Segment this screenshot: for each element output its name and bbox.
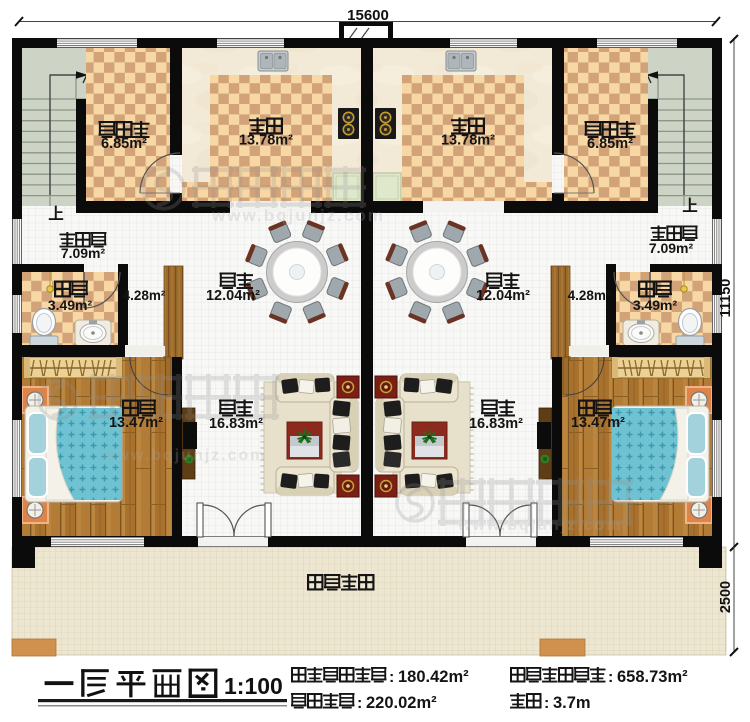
svg-text:13.47m²: 13.47m² [109, 415, 163, 431]
svg-text:658.73m²: 658.73m² [617, 668, 688, 686]
svg-text:7.09m²: 7.09m² [649, 240, 694, 256]
svg-text:13.78m²: 13.78m² [239, 133, 293, 149]
svg-text:13.47m²: 13.47m² [571, 415, 625, 431]
svg-text:1:100: 1:100 [224, 673, 283, 699]
svg-text:3.49m²: 3.49m² [48, 297, 93, 313]
svg-text:4.28m²: 4.28m² [123, 288, 166, 303]
svg-text:16.83m²: 16.83m² [209, 416, 263, 432]
svg-text:16.83m²: 16.83m² [469, 416, 523, 432]
svg-text:6.85m²: 6.85m² [587, 136, 633, 152]
svg-text:3.7m: 3.7m [553, 694, 591, 712]
svg-text:2500: 2500 [718, 581, 734, 613]
svg-text:11150: 11150 [718, 279, 734, 318]
svg-text::: : [544, 695, 549, 712]
svg-text:www.bqjunjz.com: www.bqjunjz.com [211, 206, 385, 225]
svg-text:7.09m²: 7.09m² [61, 245, 106, 261]
svg-text:3.49m²: 3.49m² [633, 297, 678, 313]
svg-text:www.bqjunjz.com: www.bqjunjz.com [457, 517, 623, 534]
svg-text:www.bqjunjz.com: www.bqjunjz.com [101, 447, 267, 464]
svg-text:220.02m²: 220.02m² [366, 694, 437, 712]
svg-text:15600: 15600 [347, 7, 389, 24]
svg-text::: : [357, 695, 362, 712]
svg-text:12.04m²: 12.04m² [476, 288, 530, 304]
svg-text:12.04m²: 12.04m² [206, 288, 260, 304]
svg-text:4.28m²: 4.28m² [568, 288, 611, 303]
svg-text:180.42m²: 180.42m² [398, 668, 469, 686]
svg-text::: : [608, 669, 613, 686]
svg-text::: : [389, 669, 394, 686]
svg-text:6.85m²: 6.85m² [101, 136, 147, 152]
svg-text:13.78m²: 13.78m² [441, 133, 495, 149]
